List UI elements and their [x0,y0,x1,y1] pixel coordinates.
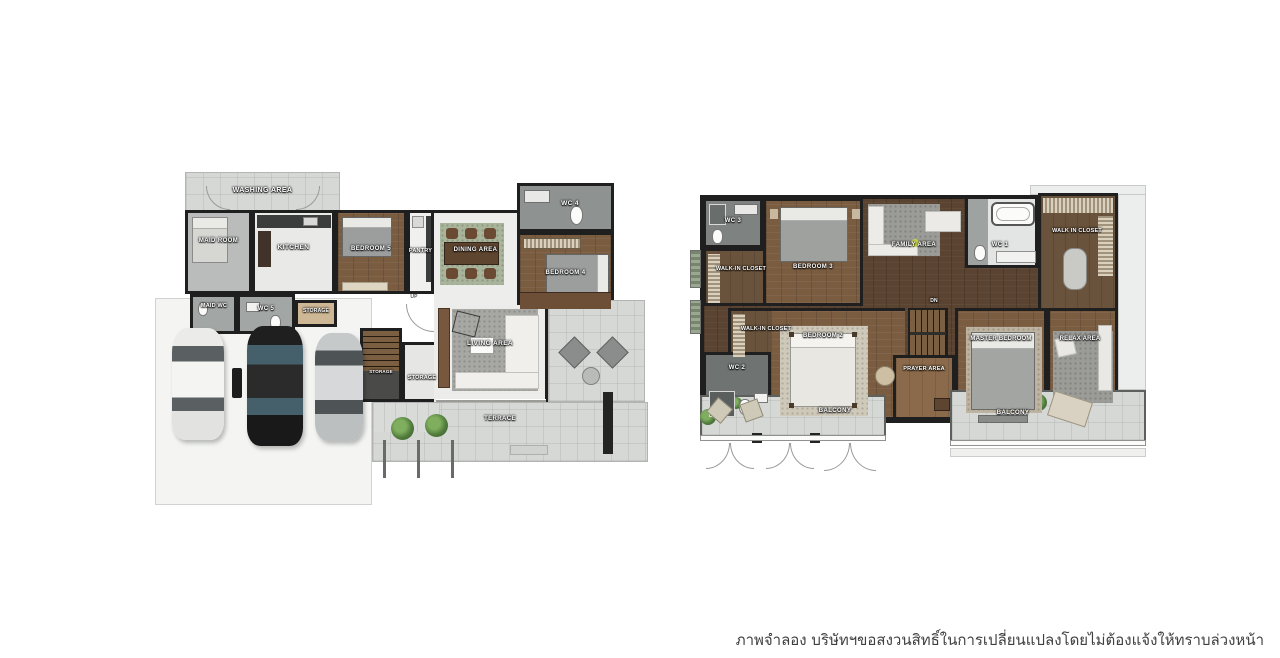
dresser-island [1063,248,1087,290]
door-arc [850,443,876,471]
wardrobe [1098,216,1113,276]
room-walk-in-closet-master [1038,193,1118,311]
stairs-up [360,328,402,402]
planter [690,300,701,334]
maid-wc-label: MAID WC [196,303,232,310]
charging-post [232,368,242,398]
storage-small-label: STORAGE [296,308,336,315]
wc3-label: WC 3 [710,218,756,226]
outdoor-table [582,367,600,385]
wc5-label: WC 5 [241,306,291,314]
door-arc [730,443,754,469]
outdoor-chair [558,336,591,369]
vanity [996,251,1036,263]
kitchen-sink [303,217,318,226]
terrace-label: TERRACE [455,416,545,424]
nightstand [852,209,860,219]
step-pad [510,445,548,455]
door-arc [824,443,850,471]
dining-chair [465,268,477,279]
door-arc [706,443,730,469]
room-maid-room [185,210,252,294]
bathtub [991,202,1035,226]
door-arc [766,443,790,469]
room-bedroom3 [763,198,863,306]
column-post [383,440,386,478]
car-black [247,326,303,446]
dining-chair [446,268,458,279]
balcony-railing [950,440,1146,446]
wc2-label: WC 2 [712,365,762,373]
terrace-side [548,300,645,402]
sofa [1098,325,1112,391]
sofa [455,372,539,389]
column-post [451,440,454,478]
toilet [712,229,723,244]
kitchen-counter [257,215,331,228]
walk-in-closet-master-label: WALK IN CLOSET [1046,228,1108,235]
room-family-area [863,199,965,263]
bench [342,282,388,291]
family-area-label: FAMILY AREA [865,242,963,250]
dining-chair [484,228,496,239]
car-white [172,328,224,440]
room-dining-area [434,210,517,305]
balcony-right-label: BALCONY [968,410,1058,418]
pantry-label: PANTRY [406,248,435,255]
pillow [781,208,847,221]
kitchen-label: KITCHEN [254,244,333,252]
outdoor-chair [596,336,629,369]
living-area-label: LIVING AREA [440,340,540,348]
wc4-label: WC 4 [545,200,595,208]
fridge [412,216,424,228]
bedroom5-label: BEDROOM 5 [337,246,405,254]
storage-nook-label: STORAGE [362,369,400,375]
maid-room-label: MAID ROOM [187,238,250,246]
pillow [343,218,391,228]
relax-area-label: RELAX AREA [1049,336,1111,344]
bedroom2-label: BEDROOM 2 [773,333,873,341]
master-bedroom-label: MASTER BEDROOM [970,336,1032,344]
wall-segment [603,392,613,454]
storage-label: STORAGE [403,375,441,382]
dining-chair [465,228,477,239]
altar-table [934,398,950,411]
roof-overhang [1118,185,1146,390]
dining-area-label: DINING AREA [432,247,519,255]
disclaimer-text: ภาพจำลอง บริษัทฯขอสงวนสิทธิ์ในการเปลี่ยน… [736,628,1264,652]
bed [780,207,848,262]
balcony-left-label: BALCONY [790,408,880,416]
balcony-railing [700,435,886,441]
room-prayer-area [893,355,955,420]
walk-in-closet-a-label: WALK-IN CLOSET [715,266,767,273]
planter [690,250,701,288]
car-silver [315,333,363,441]
step-pad [950,448,1146,457]
dining-chair [484,268,496,279]
room-living-area [434,305,548,402]
vanity [734,204,758,215]
wardrobe [523,238,581,249]
bedroom4-label: BEDROOM 4 [519,270,612,278]
wardrobe [733,314,745,357]
room-wc1 [965,196,1038,268]
wardrobe [708,254,720,303]
stair-steps [363,331,399,371]
stairs-down [908,308,948,358]
nightstand [770,209,778,219]
pillow [193,218,227,229]
bedroom3-label: BEDROOM 3 [765,264,861,272]
tv-console [520,292,611,309]
washing-area-label: WASHING AREA [205,186,320,195]
shrub [425,414,448,437]
round-table [875,366,895,386]
toilet [570,206,583,225]
up-label: UP [404,294,424,301]
dn-label: DN [924,298,944,305]
floorplan-canvas: WASHING AREA MAID ROOM KITCHEN BEDROOM 5 [0,0,1280,658]
dining-chair [446,228,458,239]
wardrobe [1043,198,1113,213]
shrub [391,417,414,440]
door-arc [406,304,434,332]
canopy-bed [790,333,856,407]
prayer-area-label: PRAYER AREA [899,366,949,373]
daybed [925,211,961,232]
door-arc [790,443,814,469]
wc1-label: WC 1 [975,242,1025,250]
column-post [417,440,420,478]
